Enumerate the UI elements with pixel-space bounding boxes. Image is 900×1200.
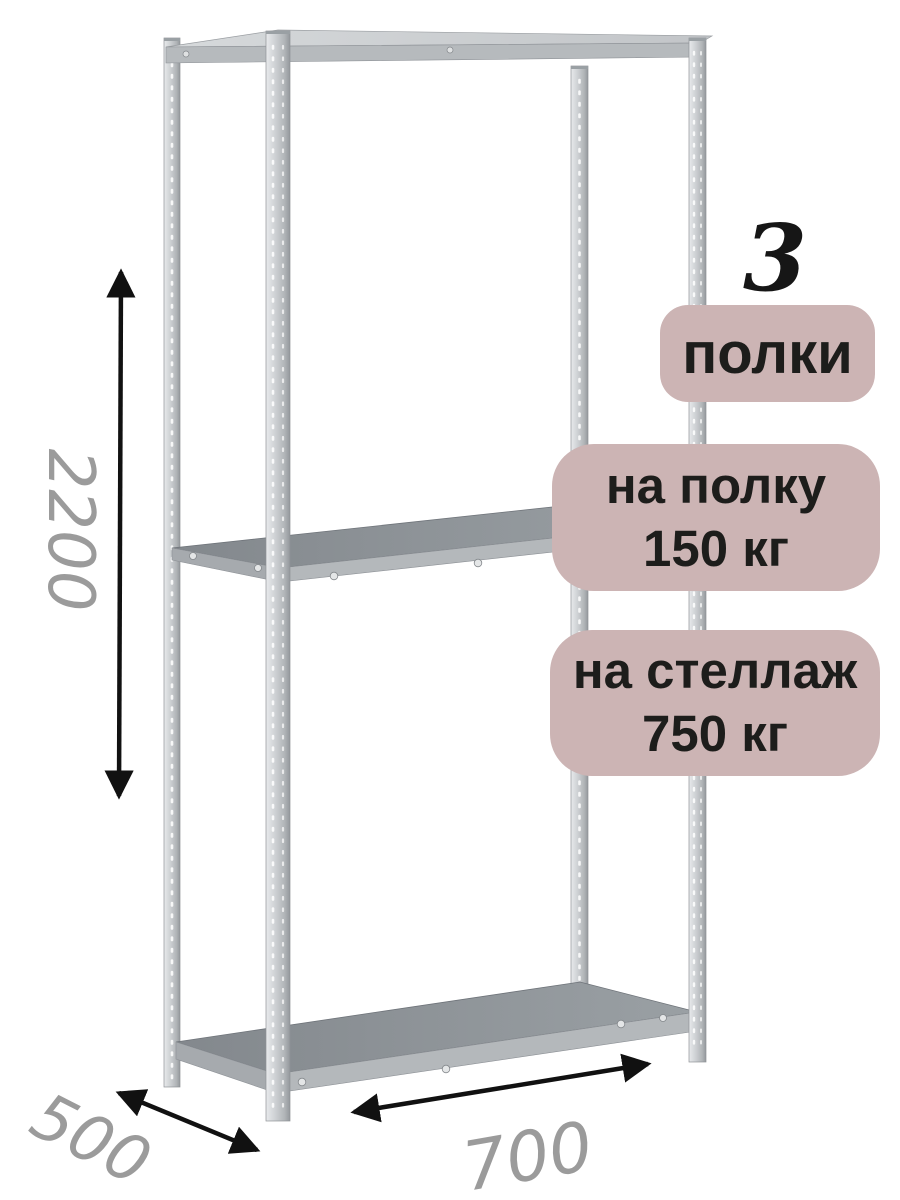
per-shelf-capacity-line2: 150 кг: [643, 518, 789, 581]
post-back-left: [164, 38, 180, 1087]
per-rack-capacity-badge: на стеллаж 750 кг: [550, 630, 880, 776]
shelving-rack-illustration: [0, 0, 900, 1200]
height-dimension-arrow: [119, 272, 121, 796]
per-shelf-capacity-badge: на полку 150 кг: [552, 444, 880, 591]
shelf-top-beam: [166, 30, 712, 63]
shelf-count-badge: полки: [660, 305, 875, 402]
per-rack-capacity-line2: 750 кг: [642, 703, 788, 766]
post-front-left: [266, 31, 290, 1121]
height-dimension-label: 2200: [32, 380, 108, 680]
shelf-count-label: полки: [682, 320, 853, 387]
per-rack-capacity-line1: на стеллаж: [573, 640, 857, 703]
shelf-bottom: [176, 982, 697, 1093]
per-shelf-capacity-line1: на полку: [606, 455, 826, 518]
shelf-count-number: 3: [715, 212, 835, 304]
product-image: 2200 500 700 3 полки на полку 150 кг на …: [0, 0, 900, 1200]
